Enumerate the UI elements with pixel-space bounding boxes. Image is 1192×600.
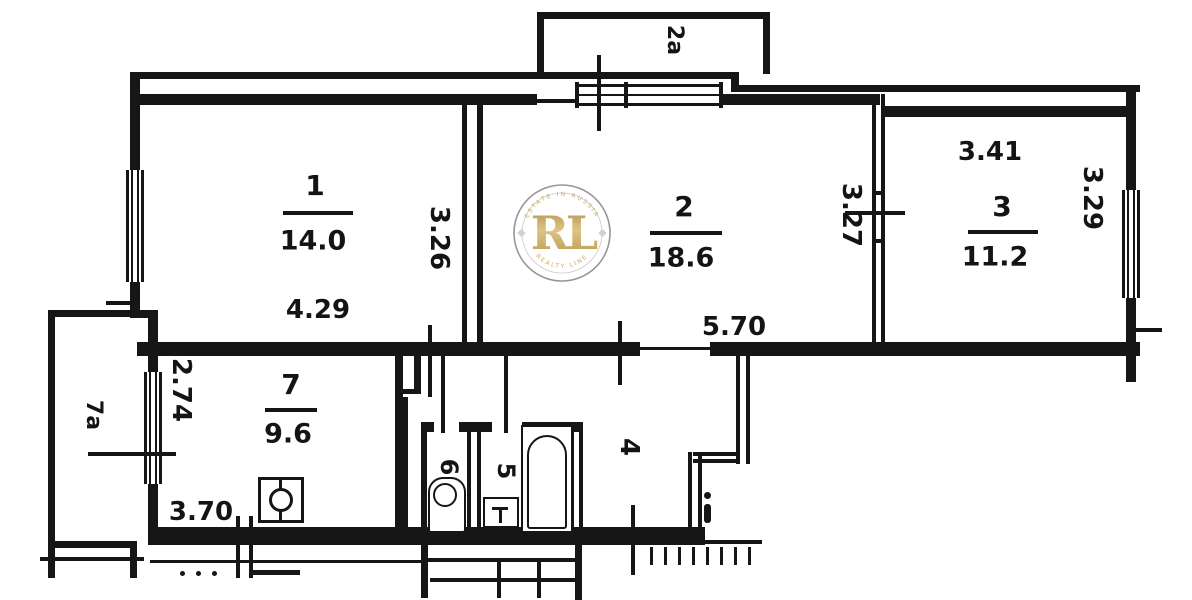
- wall-segment: [137, 170, 139, 282]
- room-1-depth-label: 3.26: [426, 206, 452, 270]
- wall-segment: [1133, 190, 1135, 298]
- wall-segment: [693, 452, 740, 456]
- window-room-1: [126, 170, 144, 282]
- wall-segment: [746, 356, 750, 464]
- wall-segment: [252, 570, 300, 575]
- sink-faucet-icon: [499, 507, 502, 523]
- wall-segment: [872, 94, 876, 345]
- wall-segment: [130, 72, 737, 79]
- wall-segment: [722, 94, 880, 105]
- wall-segment: [149, 372, 151, 484]
- wall-segment: [678, 547, 681, 565]
- wall-segment: [650, 231, 722, 235]
- bathtub-icon: [527, 435, 567, 529]
- wall-segment: [395, 342, 403, 543]
- wall-segment: [283, 211, 353, 215]
- watermark-initials: RL: [531, 206, 598, 260]
- room-3-area: 11.2: [962, 244, 1029, 271]
- wall-segment: [421, 422, 434, 432]
- toilet-icon: [433, 483, 457, 507]
- wall-segment: [618, 321, 622, 385]
- room-2-depth-label: 3.27: [838, 183, 864, 247]
- wall-segment: [650, 547, 653, 565]
- wall-segment: [150, 560, 422, 563]
- wall-segment: [537, 12, 544, 74]
- wall-segment: [88, 452, 176, 456]
- wall-segment: [421, 422, 427, 533]
- wall-segment: [597, 55, 601, 131]
- wall-segment: [155, 372, 157, 484]
- wall-segment: [1126, 298, 1136, 382]
- wall-segment: [137, 342, 640, 356]
- wall-segment: [130, 310, 158, 318]
- wall-segment: [180, 571, 185, 576]
- wall-segment: [414, 342, 421, 394]
- wall-segment: [734, 547, 737, 565]
- wall-segment: [459, 422, 492, 432]
- wall-segment: [40, 557, 144, 561]
- wall-segment: [212, 571, 217, 576]
- wall-segment: [719, 82, 723, 108]
- wall-segment: [710, 342, 1140, 356]
- wall-segment: [763, 12, 770, 74]
- wall-segment: [1126, 92, 1136, 190]
- wall-segment: [48, 310, 55, 548]
- room-2-width-label: 5.70: [702, 314, 766, 340]
- wall-segment: [236, 516, 240, 578]
- room-3-depth-label: 3.29: [1079, 166, 1105, 230]
- wall-segment: [1127, 190, 1129, 298]
- wall-segment: [430, 578, 578, 582]
- wall-segment: [664, 547, 667, 565]
- window-kitchen: [144, 372, 162, 484]
- wall-segment: [48, 541, 137, 548]
- room-7-width-label: 3.70: [169, 499, 233, 525]
- wall-segment: [148, 527, 705, 545]
- window-room-3: [1122, 190, 1140, 298]
- wall-segment: [106, 301, 132, 305]
- wall-segment: [504, 348, 508, 433]
- wall-segment: [537, 12, 770, 19]
- wall-segment: [403, 397, 408, 543]
- wall-segment: [48, 310, 130, 317]
- wall-segment: [196, 571, 201, 576]
- room-1-width-label: 4.29: [286, 297, 350, 323]
- wall-segment: [400, 389, 416, 394]
- wall-segment: [731, 85, 1140, 92]
- wall-segment: [575, 82, 579, 108]
- wall-segment: [1136, 328, 1162, 332]
- wall-segment: [537, 99, 578, 103]
- wall-segment: [624, 82, 628, 108]
- wall-segment: [575, 545, 582, 600]
- wall-segment: [130, 79, 140, 170]
- entry-door-mark: [704, 504, 711, 523]
- wall-segment: [249, 516, 253, 578]
- wall-segment: [693, 459, 740, 463]
- room-3-number: 3: [992, 193, 1011, 221]
- wall-segment: [873, 239, 885, 243]
- wall-segment: [131, 170, 133, 282]
- wall-segment: [736, 356, 740, 464]
- entry-door-mark: [704, 492, 711, 499]
- wall-segment: [579, 422, 583, 533]
- wall-segment: [130, 548, 137, 578]
- stove-icon: [269, 488, 293, 512]
- wall-segment: [137, 94, 537, 105]
- wall-segment: [698, 452, 702, 538]
- bathroom-number: 5: [494, 463, 518, 480]
- hallway-number: 4: [616, 438, 642, 456]
- wall-segment: [48, 548, 55, 578]
- wall-segment: [477, 422, 481, 533]
- wall-segment: [462, 105, 467, 342]
- watermark: ESTATE IN RUSSIA REALTY LINE RL: [510, 181, 614, 285]
- room-1-area: 14.0: [280, 228, 347, 255]
- wall-segment: [885, 106, 1130, 117]
- wall-segment: [441, 348, 445, 433]
- wall-segment: [265, 408, 317, 412]
- wall-segment: [692, 547, 695, 565]
- wall-segment: [706, 547, 709, 565]
- wall-segment: [640, 347, 710, 350]
- wall-segment: [477, 105, 483, 342]
- wall-segment: [688, 452, 692, 538]
- wall-segment: [700, 540, 762, 544]
- wall-segment: [421, 558, 582, 562]
- floor-plan: ESTATE IN RUSSIA REALTY LINE RL 1 14.0 4…: [0, 0, 1192, 600]
- room-2-area: 18.6: [648, 245, 715, 272]
- balcony-2a-label: 2a: [663, 25, 685, 55]
- room-3-width-label: 3.41: [958, 139, 1022, 165]
- wall-segment: [881, 94, 885, 345]
- wall-segment: [720, 547, 723, 565]
- wall-segment: [873, 191, 885, 195]
- room-7-number: 7: [281, 371, 300, 399]
- room-7-area: 9.6: [264, 421, 312, 448]
- wall-segment: [428, 325, 432, 397]
- balcony-7a-label: 7a: [82, 400, 104, 430]
- wall-segment: [748, 547, 751, 565]
- wc-number: 6: [437, 459, 461, 476]
- wall-segment: [421, 545, 428, 598]
- room-2-number: 2: [674, 193, 693, 221]
- room-1-number: 1: [305, 172, 324, 200]
- wall-segment: [631, 505, 635, 575]
- room-7-depth-label: 2.74: [168, 358, 194, 422]
- wall-segment: [467, 422, 471, 533]
- wall-segment: [968, 230, 1038, 234]
